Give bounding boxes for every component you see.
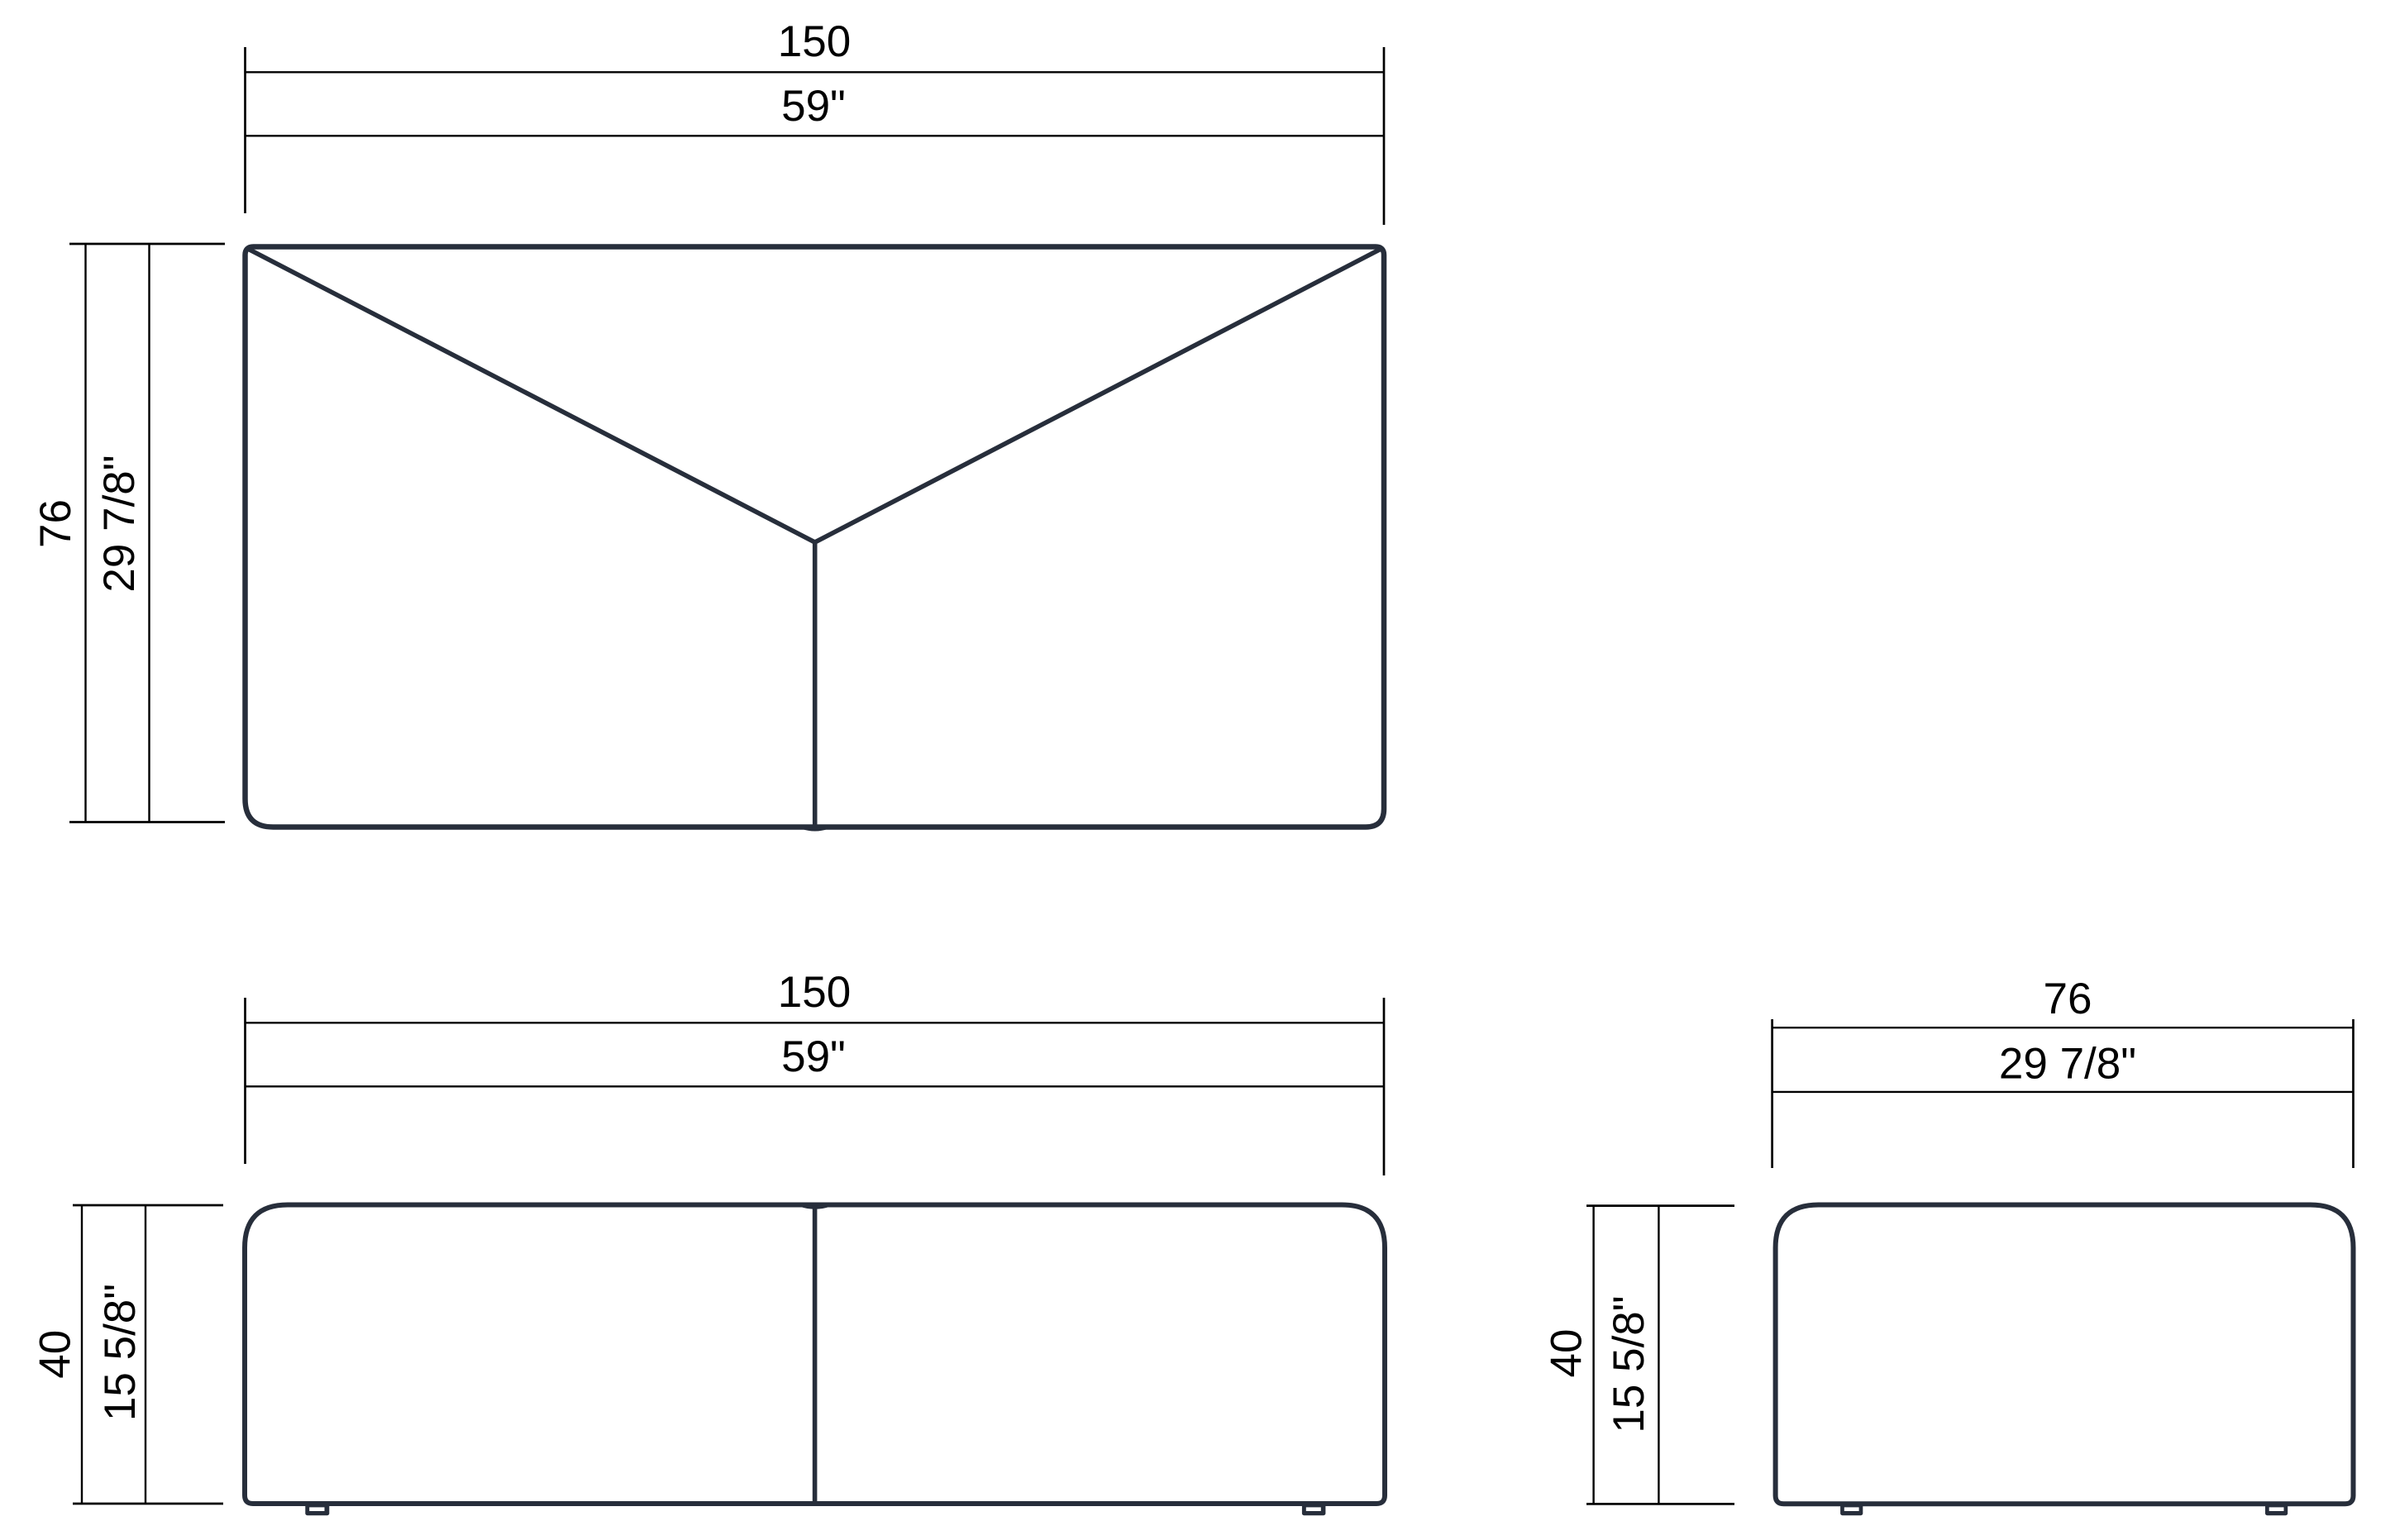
svg-text:29 7/8": 29 7/8" [1999,1040,2136,1089]
svg-text:40: 40 [1543,1329,1591,1378]
svg-text:150: 150 [778,968,851,1017]
svg-text:29 7/8": 29 7/8" [95,455,144,592]
svg-text:76: 76 [31,499,80,548]
svg-text:59": 59" [781,1032,846,1081]
svg-text:40: 40 [31,1330,80,1379]
svg-text:59": 59" [781,82,846,131]
svg-text:76: 76 [2044,975,2092,1023]
svg-text:15 5/8": 15 5/8" [96,1284,145,1421]
svg-text:150: 150 [778,17,851,66]
svg-text:15 5/8": 15 5/8" [1605,1295,1653,1433]
